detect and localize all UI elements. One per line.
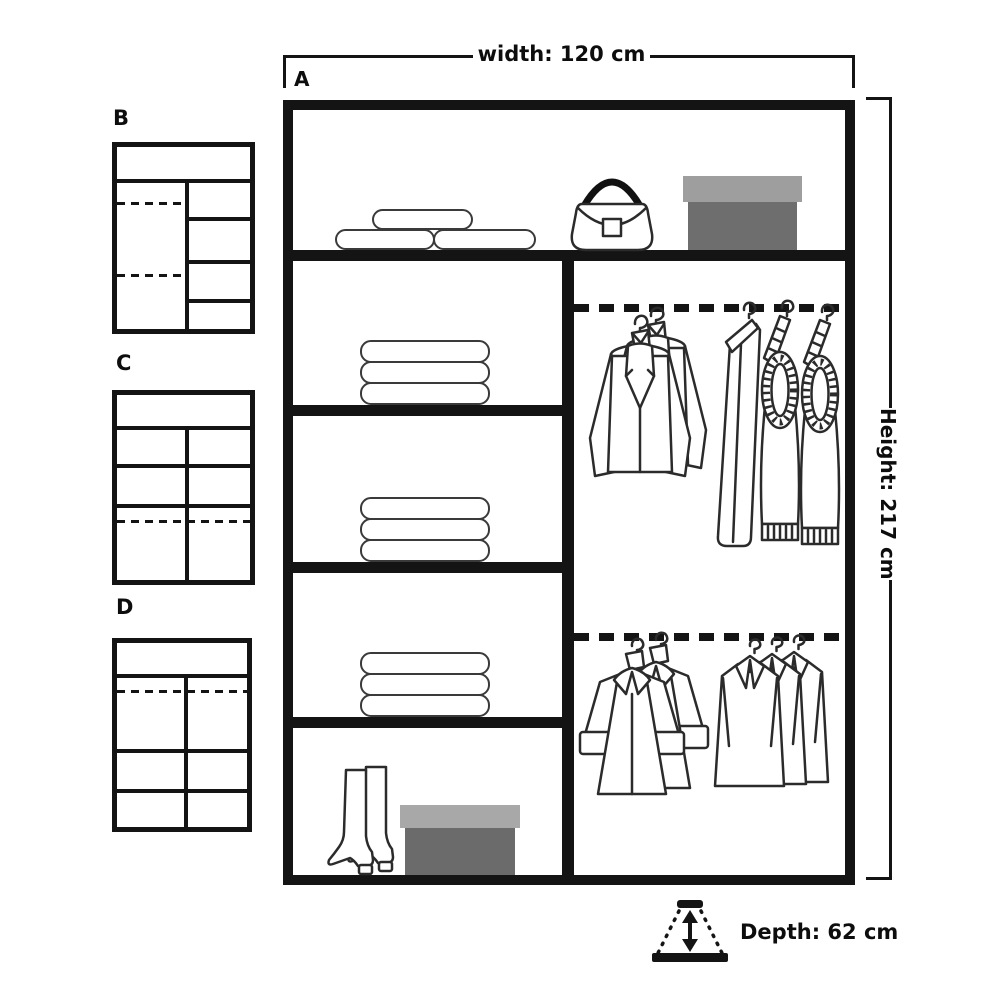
dimension-tick — [852, 55, 855, 88]
hanging-rail-dashed — [117, 520, 250, 523]
width-dimension-label: width: 120 cm — [473, 42, 650, 66]
shelf-line — [117, 464, 250, 468]
layout-c-label: C — [116, 351, 131, 375]
boots-icon — [326, 763, 406, 875]
hanging-rail-dashed — [117, 202, 185, 205]
shelf-divider — [293, 562, 574, 573]
shelf-line — [117, 504, 250, 508]
layout-a-label: A — [294, 67, 309, 91]
folded-clothes-icon — [360, 382, 490, 405]
hanging-rail-dashed — [117, 690, 247, 693]
hanging-sweaters-icon — [714, 294, 844, 554]
folded-clothes-icon — [360, 673, 490, 696]
dimension-line — [889, 580, 892, 880]
shelf-line — [187, 260, 250, 264]
shelf-divider — [293, 405, 574, 416]
dimension-line — [283, 55, 473, 58]
depth-dimension-label: Depth: 62 cm — [740, 920, 898, 944]
handbag-icon — [568, 156, 656, 254]
folded-clothes-icon — [360, 361, 490, 384]
shelf-divider — [293, 717, 574, 728]
shoe-box-lid — [400, 805, 520, 828]
shoe-box-body — [405, 828, 515, 875]
shelf-line — [187, 217, 250, 221]
depth-icon — [646, 898, 734, 968]
layout-b-label: B — [113, 106, 129, 130]
shelf-line — [117, 179, 250, 183]
divider-line — [185, 426, 189, 580]
layout-b-diagram — [112, 142, 255, 334]
dimension-tick — [866, 877, 892, 880]
hanging-jackets-icon — [578, 298, 718, 493]
hanging-coats-icon — [576, 626, 712, 804]
storage-box-body — [688, 202, 797, 250]
shelf-line — [117, 426, 250, 430]
folded-clothes-icon — [360, 694, 490, 717]
shelf-line — [117, 749, 247, 753]
dimension-line — [889, 97, 892, 408]
shelf-line — [187, 299, 250, 303]
folded-clothes-icon — [360, 539, 490, 562]
folded-duvet-icon — [335, 229, 435, 250]
layout-d-label: D — [116, 595, 133, 619]
hanging-trousers-icon — [718, 303, 760, 546]
hanging-shirts-icon — [710, 630, 844, 800]
shelf-line — [117, 674, 247, 678]
layout-c-diagram — [112, 390, 255, 585]
shelf-line — [117, 789, 247, 793]
folded-clothes-icon — [360, 518, 490, 541]
storage-box-lid — [683, 176, 802, 202]
wardrobe-layout-diagram: B C D width: 120 cm A He — [0, 0, 999, 999]
folded-clothes-icon — [360, 340, 490, 363]
dimension-line — [650, 55, 855, 58]
folded-duvet-icon — [433, 229, 536, 250]
folded-clothes-icon — [360, 497, 490, 520]
folded-clothes-icon — [360, 652, 490, 675]
divider-line — [185, 179, 189, 329]
height-dimension-label: Height: 217 cm — [876, 408, 900, 580]
layout-d-diagram — [112, 638, 252, 832]
main-wardrobe-diagram — [283, 100, 855, 885]
hanging-rail-dashed — [117, 274, 185, 277]
folded-duvet-icon — [372, 209, 473, 230]
dimension-tick — [283, 55, 286, 88]
